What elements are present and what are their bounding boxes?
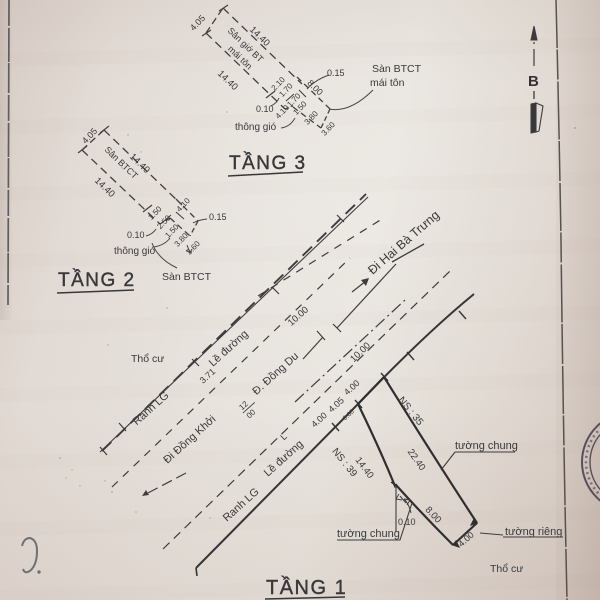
- svg-text:Thổ cư: Thổ cư: [490, 563, 523, 575]
- svg-text:Sàn BTCT: Sàn BTCT: [162, 271, 212, 283]
- svg-text:14.40: 14.40: [215, 68, 240, 92]
- svg-text:4.00: 4.00: [342, 378, 362, 397]
- svg-text:tường riêng: tường riêng: [505, 526, 562, 538]
- svg-text:NS : 35: NS : 35: [396, 395, 426, 428]
- svg-text:4.05: 4.05: [188, 13, 207, 33]
- svg-text:Ranh LG: Ranh LG: [221, 486, 262, 524]
- svg-text:0.15: 0.15: [209, 212, 227, 222]
- svg-text:L: L: [278, 431, 289, 442]
- svg-text:3.80: 3.80: [303, 109, 321, 127]
- svg-text:8.00: 8.00: [423, 504, 444, 525]
- svg-text:3.60: 3.60: [320, 120, 338, 138]
- svg-text:Sàn BTCT: Sàn BTCT: [372, 63, 422, 75]
- svg-text:TẦNG 1: TẦNG 1: [266, 576, 347, 599]
- svg-text:4.05: 4.05: [80, 126, 99, 146]
- svg-text:22.40: 22.40: [405, 447, 428, 473]
- svg-text:10.00: 10.00: [286, 304, 311, 328]
- svg-text:thông gió: thông gió: [114, 246, 156, 257]
- svg-text:mái tôn: mái tôn: [370, 77, 405, 89]
- svg-text:tường chung: tường chung: [337, 528, 400, 540]
- svg-text:TẦNG 3: TẦNG 3: [229, 152, 307, 174]
- svg-text:Lề đường: Lề đường: [262, 438, 306, 479]
- svg-text:0.60: 0.60: [342, 408, 356, 422]
- svg-text:4.05: 4.05: [326, 395, 346, 414]
- svg-text:Đi Hai Bà Trưng: Đi Hai Bà Trưng: [365, 208, 442, 277]
- svg-text:thông gió: thông gió: [235, 122, 277, 133]
- svg-text:Thổ cư: Thổ cư: [131, 353, 164, 365]
- svg-text:TẦNG 2: TẦNG 2: [58, 269, 136, 291]
- svg-text:3.60: 3.60: [185, 239, 203, 257]
- svg-text:4.00: 4.00: [309, 410, 329, 429]
- svg-text:Đi Đồng Khởi: Đi Đồng Khởi: [161, 413, 218, 466]
- svg-text:Lề đường: Lề đường: [207, 328, 251, 369]
- svg-text:Đ. Đồng Du: Đ. Đồng Du: [250, 350, 301, 397]
- svg-text:0.10: 0.10: [256, 104, 274, 114]
- svg-text:tường chung: tường chung: [455, 440, 518, 452]
- svg-text:0.15: 0.15: [327, 68, 345, 78]
- svg-text:4.10: 4.10: [175, 196, 193, 214]
- svg-text:Ranh LG: Ranh LG: [131, 390, 172, 428]
- svg-text:4.00: 4.00: [456, 530, 476, 549]
- svg-text:00: 00: [245, 407, 258, 420]
- svg-text:B: B: [528, 73, 539, 90]
- svg-text:0.10: 0.10: [127, 230, 145, 240]
- svg-text:10.00: 10.00: [348, 340, 373, 364]
- svg-text:8.00: 8.00: [305, 78, 325, 97]
